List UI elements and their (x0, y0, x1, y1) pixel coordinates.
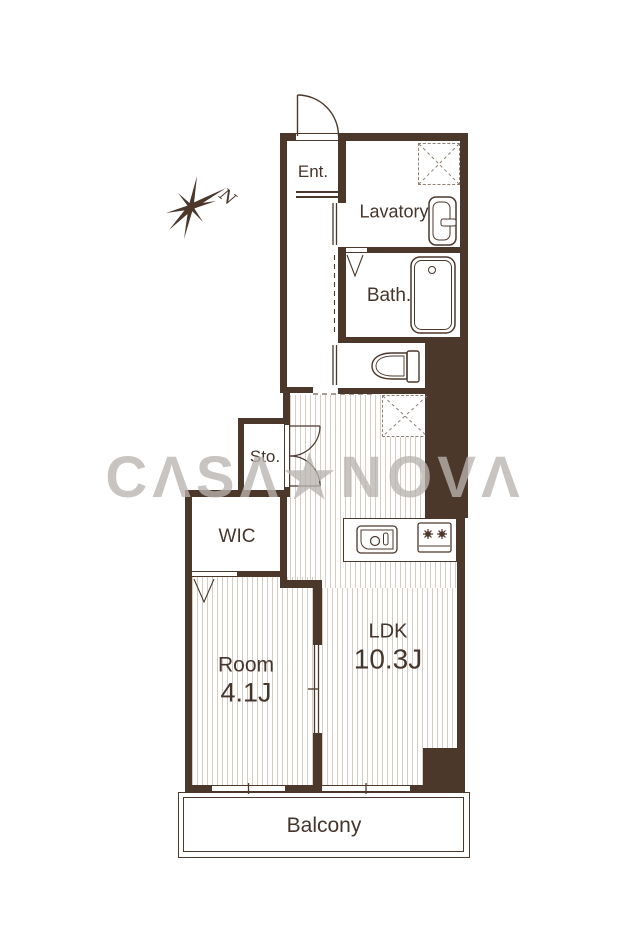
wall (367, 247, 468, 253)
wall (284, 418, 290, 425)
wall-block (423, 748, 465, 792)
toilet-icon (372, 351, 419, 382)
ldk-size: 10.3J (354, 644, 423, 676)
wall (185, 490, 192, 792)
compass-north-label: N (214, 184, 240, 210)
wall (460, 141, 468, 343)
wall (313, 733, 322, 792)
room-window (212, 785, 285, 792)
entrance-door-icon (298, 95, 339, 136)
ldk-name: LDK (354, 621, 423, 644)
bath-folding-door-icon (347, 255, 363, 276)
bathtub-icon (411, 257, 455, 333)
compass-icon: N (166, 176, 240, 239)
bath-label: Bath. (367, 285, 411, 307)
ldk-window (322, 785, 410, 792)
washing-machine-pan-icon (418, 143, 460, 185)
wall (457, 518, 465, 748)
wall (338, 141, 346, 197)
wall (185, 785, 212, 792)
wall (280, 141, 287, 393)
bath-door-opening (346, 247, 367, 253)
wall (238, 418, 290, 424)
washbasin-icon (429, 197, 456, 245)
refrigerator-space-icon (382, 395, 428, 437)
wall (280, 133, 296, 141)
balcony-label: Balcony (287, 814, 362, 838)
lavatory-label: Lavatory (359, 202, 428, 223)
lavatory-sliding-door-icon (333, 203, 337, 245)
wall (338, 133, 468, 141)
casa-nova-watermark: CΛSΛ★NOVΛ (0, 449, 630, 507)
room-label: Room 4.1J (218, 654, 274, 709)
room-size: 4.1J (218, 678, 274, 709)
wic-label: WIC (219, 526, 256, 548)
wall (338, 197, 346, 203)
wall (410, 785, 425, 792)
floor-plan: N Ent. Lavatory Bath. Sto. WIC Room 4.1J… (0, 0, 630, 950)
entrance-step-line (296, 191, 338, 193)
entrance-step-line (296, 196, 338, 198)
wall (338, 253, 346, 337)
entrance-opening (296, 133, 338, 141)
wall (237, 571, 287, 577)
ent-label: Ent. (298, 162, 328, 182)
ldk-label: LDK 10.3J (354, 621, 423, 676)
wall (285, 785, 322, 792)
kitchen-counter (343, 518, 457, 562)
wall (338, 388, 428, 394)
wall (313, 588, 322, 645)
wic-door-opening (192, 571, 237, 577)
toilet-sliding-door-icon (333, 345, 337, 385)
wall (280, 580, 322, 588)
room-name: Room (218, 654, 274, 678)
wall (338, 337, 468, 343)
